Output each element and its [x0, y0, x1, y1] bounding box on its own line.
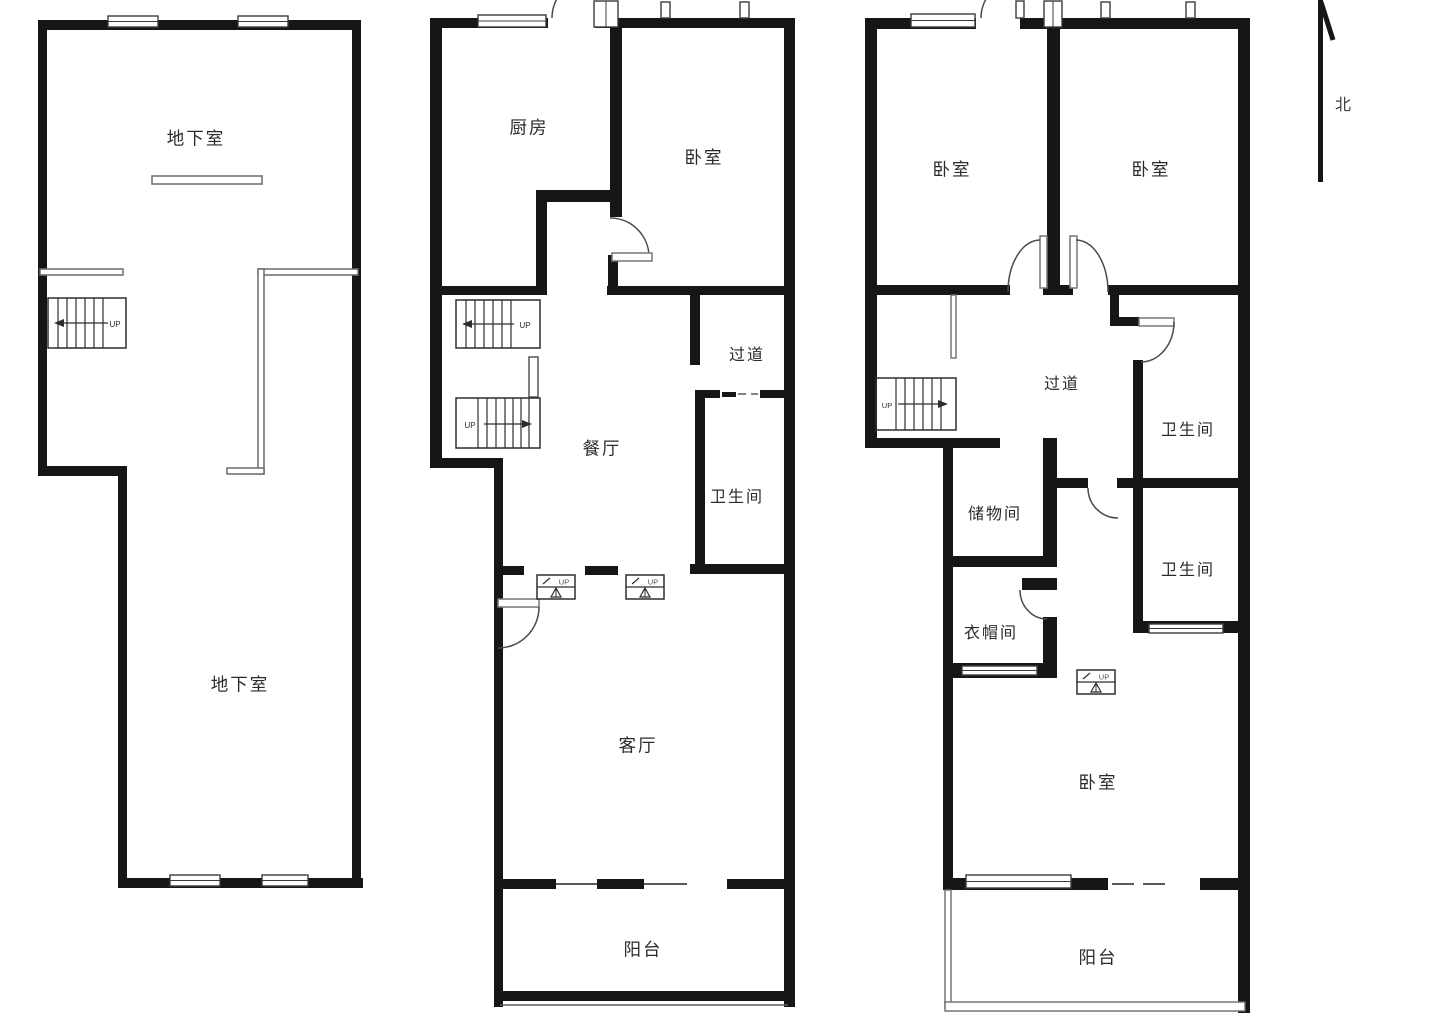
door-leaf [498, 599, 539, 607]
basement-staircase: UP [48, 298, 126, 348]
door-arc [498, 607, 539, 648]
door-frame [1016, 1, 1024, 18]
entry-opening [548, 17, 595, 29]
room-label-bedroom-big: 卧室 [1079, 770, 1118, 795]
room-label-bedroom-right: 卧室 [1132, 157, 1171, 182]
room-label-cloakroom: 衣帽间 [964, 619, 1018, 643]
room-label-balcony-main: 阳台 [624, 937, 663, 962]
main-staircase-lower: UP [456, 398, 540, 448]
stair-rail [529, 357, 538, 397]
stairs-up-label: UP [882, 401, 892, 410]
wall-tick [740, 2, 749, 18]
main-staircase-upper: UP [456, 300, 540, 348]
upper-staircase: UP [876, 378, 956, 430]
room-label-balcony-upper: 阳台 [1079, 945, 1118, 970]
room-label-hallway-main: 过道 [729, 341, 765, 365]
entry-opening [976, 17, 1020, 30]
door-arc [552, 0, 592, 18]
stairs-up-label: UP [519, 321, 530, 330]
north-arrow [1318, 0, 1333, 182]
room-label-dining: 餐厅 [583, 436, 622, 461]
door-arc [1141, 322, 1174, 362]
door-arc [981, 0, 1019, 18]
steps-symbol [537, 575, 575, 599]
room-label-bathroom-upper-2: 卫生间 [1161, 556, 1215, 580]
room-label-bathroom-upper-1: 卫生间 [1161, 416, 1215, 440]
door-arc [610, 218, 649, 257]
room-label-kitchen: 厨房 [510, 115, 549, 140]
wall-tick [1101, 2, 1110, 18]
plan-upper-walls [865, 18, 1250, 1013]
door-leaf [612, 253, 652, 261]
floorplan-canvas: UP UP [0, 0, 1440, 1024]
door-leaf [1139, 318, 1174, 326]
door-arc [1088, 488, 1118, 518]
steps-symbol [1077, 670, 1115, 694]
room-label-storage: 储物间 [968, 500, 1022, 524]
stairs-up-label: UP [464, 421, 475, 430]
door-arc [1076, 240, 1108, 292]
basement-shelf [152, 176, 262, 184]
room-label-bedroom-main: 卧室 [685, 145, 724, 170]
wall-tick [661, 2, 670, 18]
north-label: 北 [1335, 91, 1351, 115]
upper-floor-doors [981, 0, 1174, 619]
plan-main-walls [430, 18, 795, 1007]
room-label-hallway-upper: 过道 [1044, 370, 1080, 394]
door-leaf [1070, 236, 1077, 288]
room-label-living-room: 客厅 [619, 733, 658, 758]
door-arc [1020, 590, 1047, 619]
plan-upper-thin-lines [945, 295, 1245, 1011]
door-leaf [1040, 236, 1047, 288]
room-label-bedroom-left: 卧室 [933, 157, 972, 182]
plan-basement-partitions [40, 176, 358, 474]
wall-tick [1186, 2, 1195, 18]
stairs-up-label: UP [109, 320, 120, 329]
room-label-bathroom-main: 卫生间 [710, 483, 764, 507]
door-arc [1008, 240, 1040, 292]
room-label-basement-lower: 地下室 [211, 672, 270, 697]
room-label-basement-upper: 地下室 [167, 126, 226, 151]
steps-symbol [626, 575, 664, 599]
